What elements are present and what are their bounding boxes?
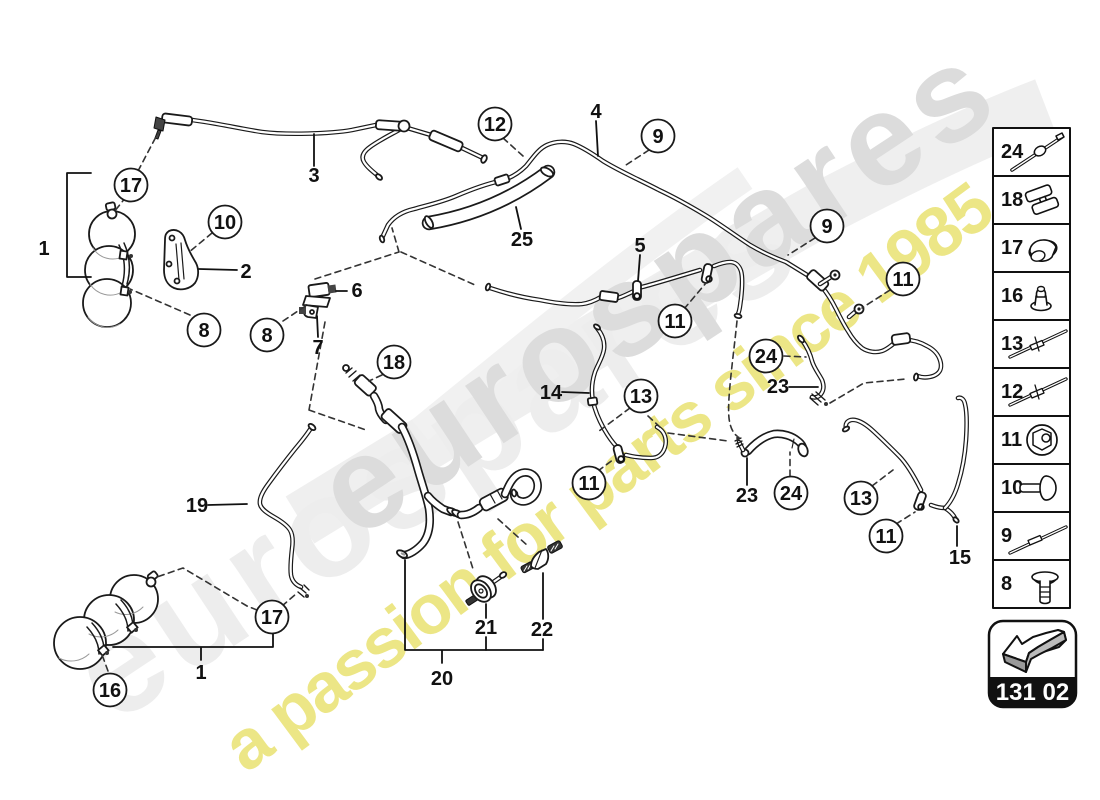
svg-text:19: 19 [186, 495, 208, 517]
svg-text:7: 7 [312, 337, 323, 359]
svg-text:8: 8 [198, 320, 209, 342]
svg-text:9: 9 [652, 126, 663, 148]
svg-text:2: 2 [240, 261, 251, 283]
svg-text:24: 24 [780, 483, 803, 505]
svg-text:25: 25 [511, 229, 533, 251]
svg-text:9: 9 [1001, 525, 1012, 547]
svg-text:11: 11 [892, 269, 913, 291]
svg-text:23: 23 [767, 376, 789, 398]
svg-text:11: 11 [578, 473, 599, 495]
svg-text:3: 3 [308, 165, 319, 187]
svg-text:17: 17 [1001, 237, 1023, 259]
svg-text:11: 11 [664, 311, 685, 333]
svg-text:14: 14 [540, 382, 563, 404]
svg-text:8: 8 [1001, 573, 1012, 595]
svg-text:24: 24 [1001, 141, 1024, 163]
svg-text:9: 9 [821, 216, 832, 238]
svg-text:5: 5 [634, 235, 645, 257]
svg-text:10: 10 [214, 212, 236, 234]
svg-text:13: 13 [630, 386, 652, 408]
svg-text:17: 17 [120, 175, 142, 197]
svg-text:6: 6 [351, 280, 362, 302]
svg-text:16: 16 [1001, 285, 1023, 307]
svg-text:11: 11 [1001, 429, 1022, 451]
svg-text:13: 13 [850, 488, 872, 510]
svg-text:1: 1 [38, 238, 49, 260]
svg-text:17: 17 [261, 607, 283, 629]
svg-text:11: 11 [875, 526, 896, 548]
svg-text:1: 1 [195, 662, 206, 684]
svg-text:131 02: 131 02 [996, 679, 1069, 706]
svg-text:18: 18 [1001, 189, 1023, 211]
svg-text:4: 4 [590, 101, 602, 123]
svg-text:23: 23 [736, 485, 758, 507]
svg-text:24: 24 [755, 346, 778, 368]
svg-text:20: 20 [431, 668, 453, 690]
svg-text:22: 22 [531, 619, 553, 641]
svg-text:12: 12 [484, 114, 506, 136]
svg-text:8: 8 [261, 325, 272, 347]
svg-text:18: 18 [383, 352, 405, 374]
svg-text:21: 21 [475, 617, 497, 639]
svg-text:15: 15 [949, 547, 971, 569]
svg-text:16: 16 [99, 680, 121, 702]
